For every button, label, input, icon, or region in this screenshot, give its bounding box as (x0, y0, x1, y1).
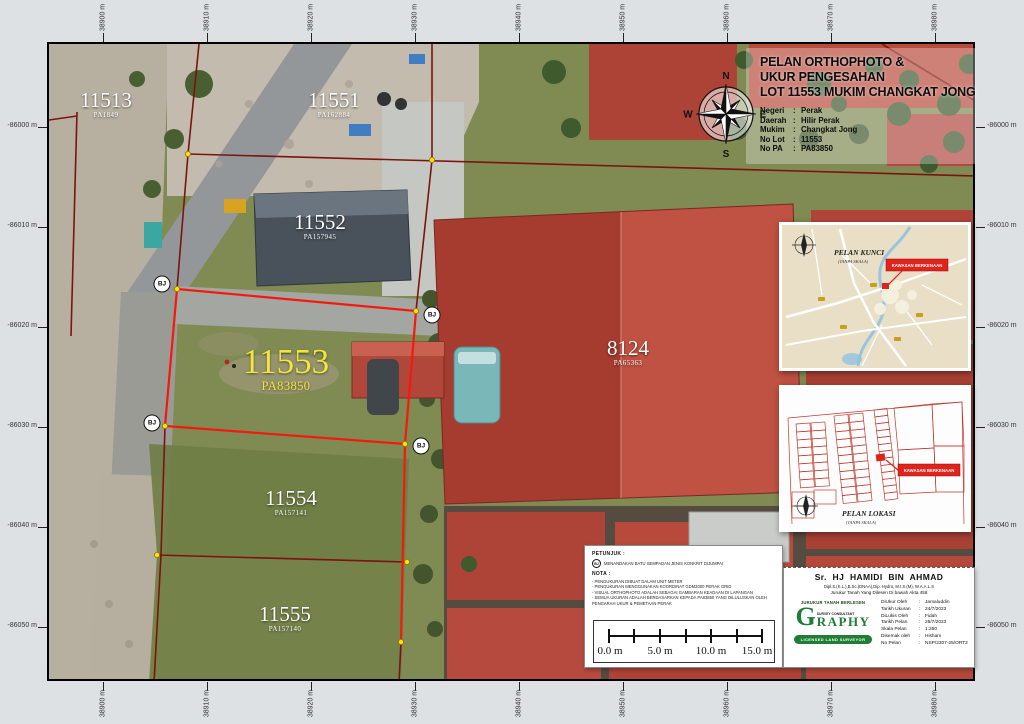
coord-label: -86040 m (1, 522, 37, 529)
notes-list: - PENGUKURAN DIBUAT DALAM UNIT METER - P… (592, 579, 775, 606)
coord-label: 38920 m (308, 0, 315, 36)
inset-subtitle: (TANPA SKALA) (838, 259, 869, 264)
lot-label-8124: 8124PA65363 (607, 338, 649, 367)
coord-label: 38940 m (516, 686, 523, 722)
licensed-surveyor-badge: LICENSED LAND SURVEYOR (794, 635, 873, 644)
coord-label: 38910 m (204, 0, 211, 36)
coord-label: -86030 m (1, 422, 37, 429)
bj-marker: BJ (424, 307, 441, 324)
legend-heading: PETUNJUK : (592, 551, 775, 557)
tick (976, 527, 985, 528)
coord-label: 38980 m (932, 686, 939, 722)
scale-label: 15.0 m (742, 645, 773, 657)
surveyor-license-line: Jurukur Tanah Yang Dilesen Di bawah Akta… (789, 590, 969, 595)
coord-label: -86050 m (987, 622, 1017, 629)
tick (976, 227, 985, 228)
lot-label-11555: 11555PA157140 (259, 604, 311, 633)
logo-wordmark: RAPHY (817, 616, 871, 628)
coord-label: -86020 m (987, 322, 1017, 329)
tick (38, 427, 47, 428)
coord-label: 38950 m (620, 686, 627, 722)
lot-label-11553: 11553PA83850 (243, 344, 329, 393)
tick (38, 327, 47, 328)
coord-label: -86050 m (1, 622, 37, 629)
inset-title: PELAN KUNCI (834, 248, 885, 257)
key-plan-inset: PELAN KUNCI (TANPA SKALA) KAWASAN BERKEN… (779, 222, 971, 371)
lot-label-11552: 11552PA157945 (294, 212, 346, 241)
coord-label: 38950 m (620, 0, 627, 36)
tick (38, 227, 47, 228)
coord-label: -86010 m (987, 222, 1017, 229)
surveyor-panel: Sr. HJ HAMIDI BIN AHMAD Dipl.S.(K.L.),B.… (783, 567, 975, 668)
coord-label: -86040 m (987, 522, 1017, 529)
legend-panel: PETUNJUK : BJ MENANDAKAN BATU SEMPADAN J… (584, 545, 783, 668)
coord-label: -86020 m (1, 322, 37, 329)
inset-subtitle: (TANPA SKALA) (846, 520, 877, 525)
bj-marker: BJ (144, 415, 161, 432)
plan-record-table: DiUkur Oleh:Jamaluddin Tarikh Ukuran:24/… (877, 600, 969, 648)
coord-label: -86010 m (1, 222, 37, 229)
tick (38, 127, 47, 128)
coord-label: 38930 m (412, 686, 419, 722)
page-title: PELAN ORTHOPHOTO & (760, 55, 976, 70)
coord-label: 38900 m (100, 0, 107, 36)
bj-legend-text: MENANDAKAN BATU SEMPADAN JENIS KONKRIT D… (604, 561, 723, 566)
location-plan-inset: KAWASAN BERKENAAN PELAN LOKASI (TANPA SK… (779, 385, 971, 532)
lot-label-11551: 11551PA162884 (308, 90, 360, 119)
orthophoto-survey-sheet: 11513PA1849 11551PA162884 11552PA157945 … (0, 0, 1024, 724)
area-marker-label: KAWASAN BERKENAAN (904, 468, 955, 473)
coord-label: 38940 m (516, 0, 523, 36)
compass-south-label: S (723, 149, 730, 160)
inset-title: PELAN LOKASI (842, 509, 897, 518)
scale-label: 0.0 m (597, 645, 622, 657)
tick (38, 527, 47, 528)
coord-label: -86000 m (1, 122, 37, 129)
bj-marker: BJ (413, 438, 430, 455)
scale-label: 5.0 m (647, 645, 672, 657)
tick (38, 627, 47, 628)
tick (976, 627, 985, 628)
notes-heading: NOTA : (592, 571, 775, 577)
firm-logo: JURUKUR TANAH BERLESEN G SURVEY CONSULTA… (789, 600, 877, 648)
bj-legend-icon: BJ (592, 559, 601, 568)
plan-details: Negeri:Perak Daerah:Hilir Perak Mukim:Ch… (760, 106, 976, 154)
compass-north-label: N (722, 71, 729, 82)
title-block: PELAN ORTHOPHOTO & UKUR PENGESAHAN LOT 1… (760, 55, 976, 154)
coord-label: 38960 m (724, 0, 731, 36)
lot-label-11513: 11513PA1849 (80, 90, 132, 119)
tick (976, 127, 985, 128)
coord-label: -86030 m (987, 422, 1017, 429)
coord-label: -86000 m (987, 122, 1017, 129)
logo-g-letter: G (796, 606, 816, 628)
coord-label: 38910 m (204, 686, 211, 722)
bj-marker: BJ (154, 276, 171, 293)
surveyor-name: Sr. HJ HAMIDI BIN AHMAD (789, 572, 969, 582)
coord-label: 38970 m (828, 0, 835, 36)
coord-label: 38970 m (828, 686, 835, 722)
coord-label: 38980 m (932, 0, 939, 36)
coord-label: 38900 m (100, 686, 107, 722)
lot-label-11554: 11554PA157141 (265, 488, 317, 517)
compass-east-label: E (760, 110, 767, 121)
tick (976, 327, 985, 328)
highlighted-lot (876, 453, 886, 461)
area-marker-label: KAWASAN BERKENAAN (892, 263, 943, 268)
scale-bar: 0.0 m 5.0 m 10.0 m 15.0 m (593, 620, 775, 663)
scale-label: 10.0 m (696, 645, 727, 657)
surveyor-credentials: Dipl.S.(K.L.),B.Sc.(DNAA),Dip. Hydro, M.… (789, 584, 969, 589)
coord-label: 38920 m (308, 686, 315, 722)
coord-label: 38960 m (724, 686, 731, 722)
tick (976, 427, 985, 428)
coord-label: 38930 m (412, 0, 419, 36)
compass-rose-icon: N E S W (678, 66, 774, 162)
compass-west-label: W (683, 110, 693, 121)
